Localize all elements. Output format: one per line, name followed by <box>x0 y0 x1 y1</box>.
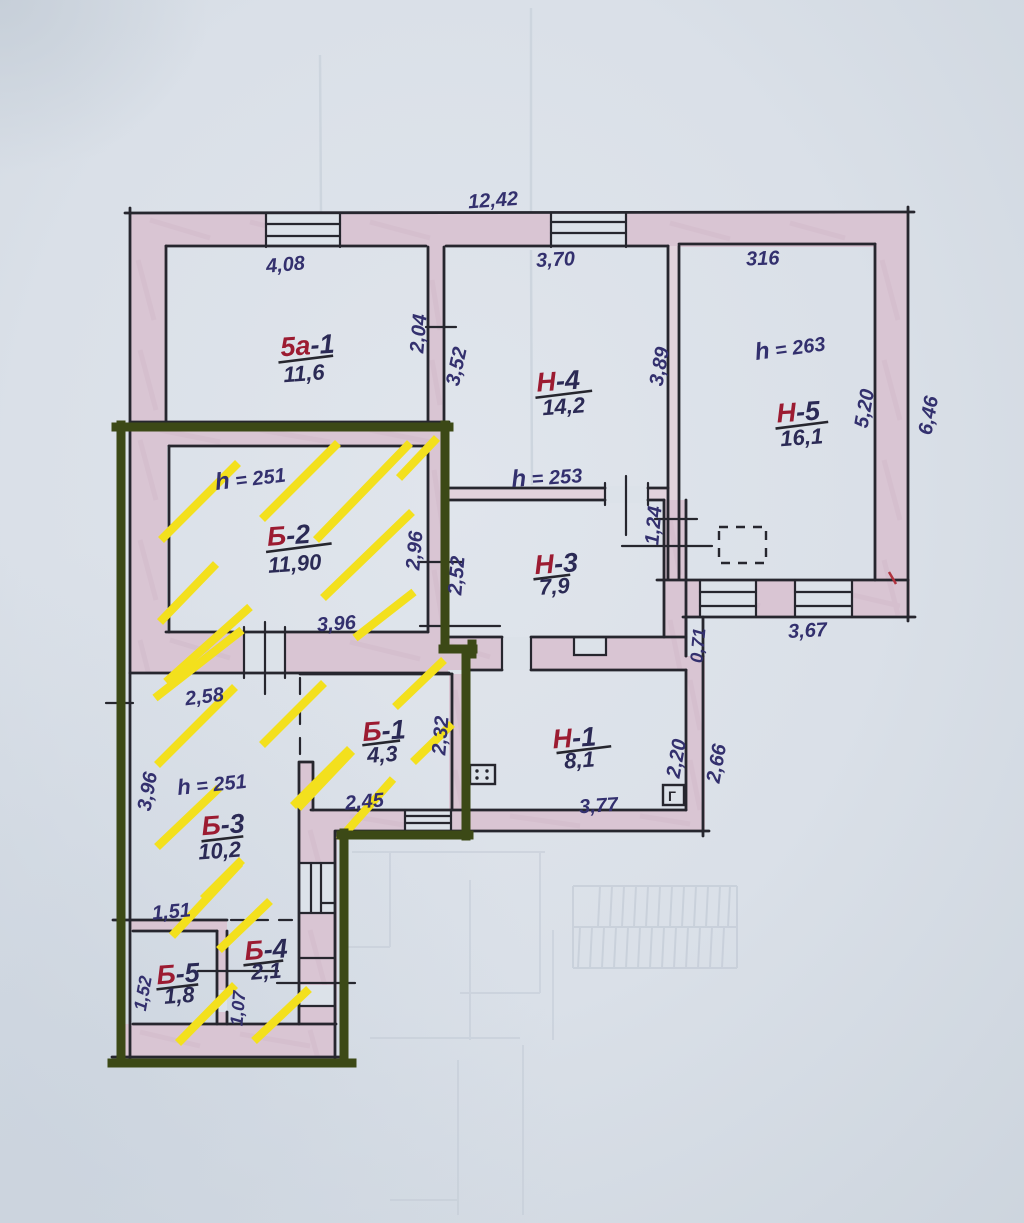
svg-text:8,1: 8,1 <box>563 746 595 773</box>
svg-text:2,96: 2,96 <box>402 529 427 572</box>
svg-text:3,77: 3,77 <box>578 794 619 819</box>
svg-text:1,51: 1,51 <box>151 899 192 924</box>
svg-text:2,1: 2,1 <box>249 958 282 985</box>
svg-text:2,32: 2,32 <box>428 715 453 757</box>
svg-text:16,1: 16,1 <box>779 423 823 451</box>
svg-text:14,2: 14,2 <box>541 392 586 420</box>
svg-text:11,90: 11,90 <box>267 549 323 578</box>
svg-text:3,96: 3,96 <box>316 612 357 637</box>
svg-text:2,04: 2,04 <box>406 313 431 355</box>
svg-text:2,52: 2,52 <box>444 555 469 597</box>
svg-text:1,07: 1,07 <box>226 989 249 1027</box>
svg-text:4,3: 4,3 <box>365 741 398 768</box>
svg-text:10,2: 10,2 <box>197 837 242 865</box>
svg-text:4,08: 4,08 <box>264 252 307 277</box>
svg-text:3,67: 3,67 <box>787 619 828 643</box>
svg-text:12,42: 12,42 <box>467 188 518 213</box>
svg-text:2,45: 2,45 <box>343 789 386 814</box>
svg-text:1,24: 1,24 <box>641 505 666 546</box>
svg-text:1,8: 1,8 <box>163 982 196 1009</box>
svg-text:316: 316 <box>746 247 781 270</box>
svg-text:11,6: 11,6 <box>282 359 326 387</box>
svg-text:0,71: 0,71 <box>686 627 709 664</box>
svg-text:Г: Г <box>668 788 676 804</box>
svg-text:3,70: 3,70 <box>535 248 575 272</box>
svg-text:7,9: 7,9 <box>538 573 571 600</box>
